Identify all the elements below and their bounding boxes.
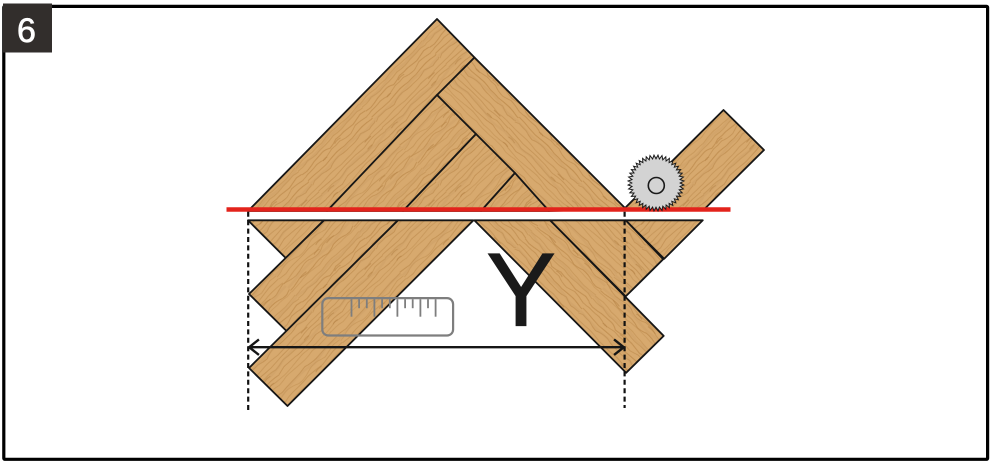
svg-text:6: 6 [17,12,36,50]
svg-text:Y: Y [486,233,555,349]
